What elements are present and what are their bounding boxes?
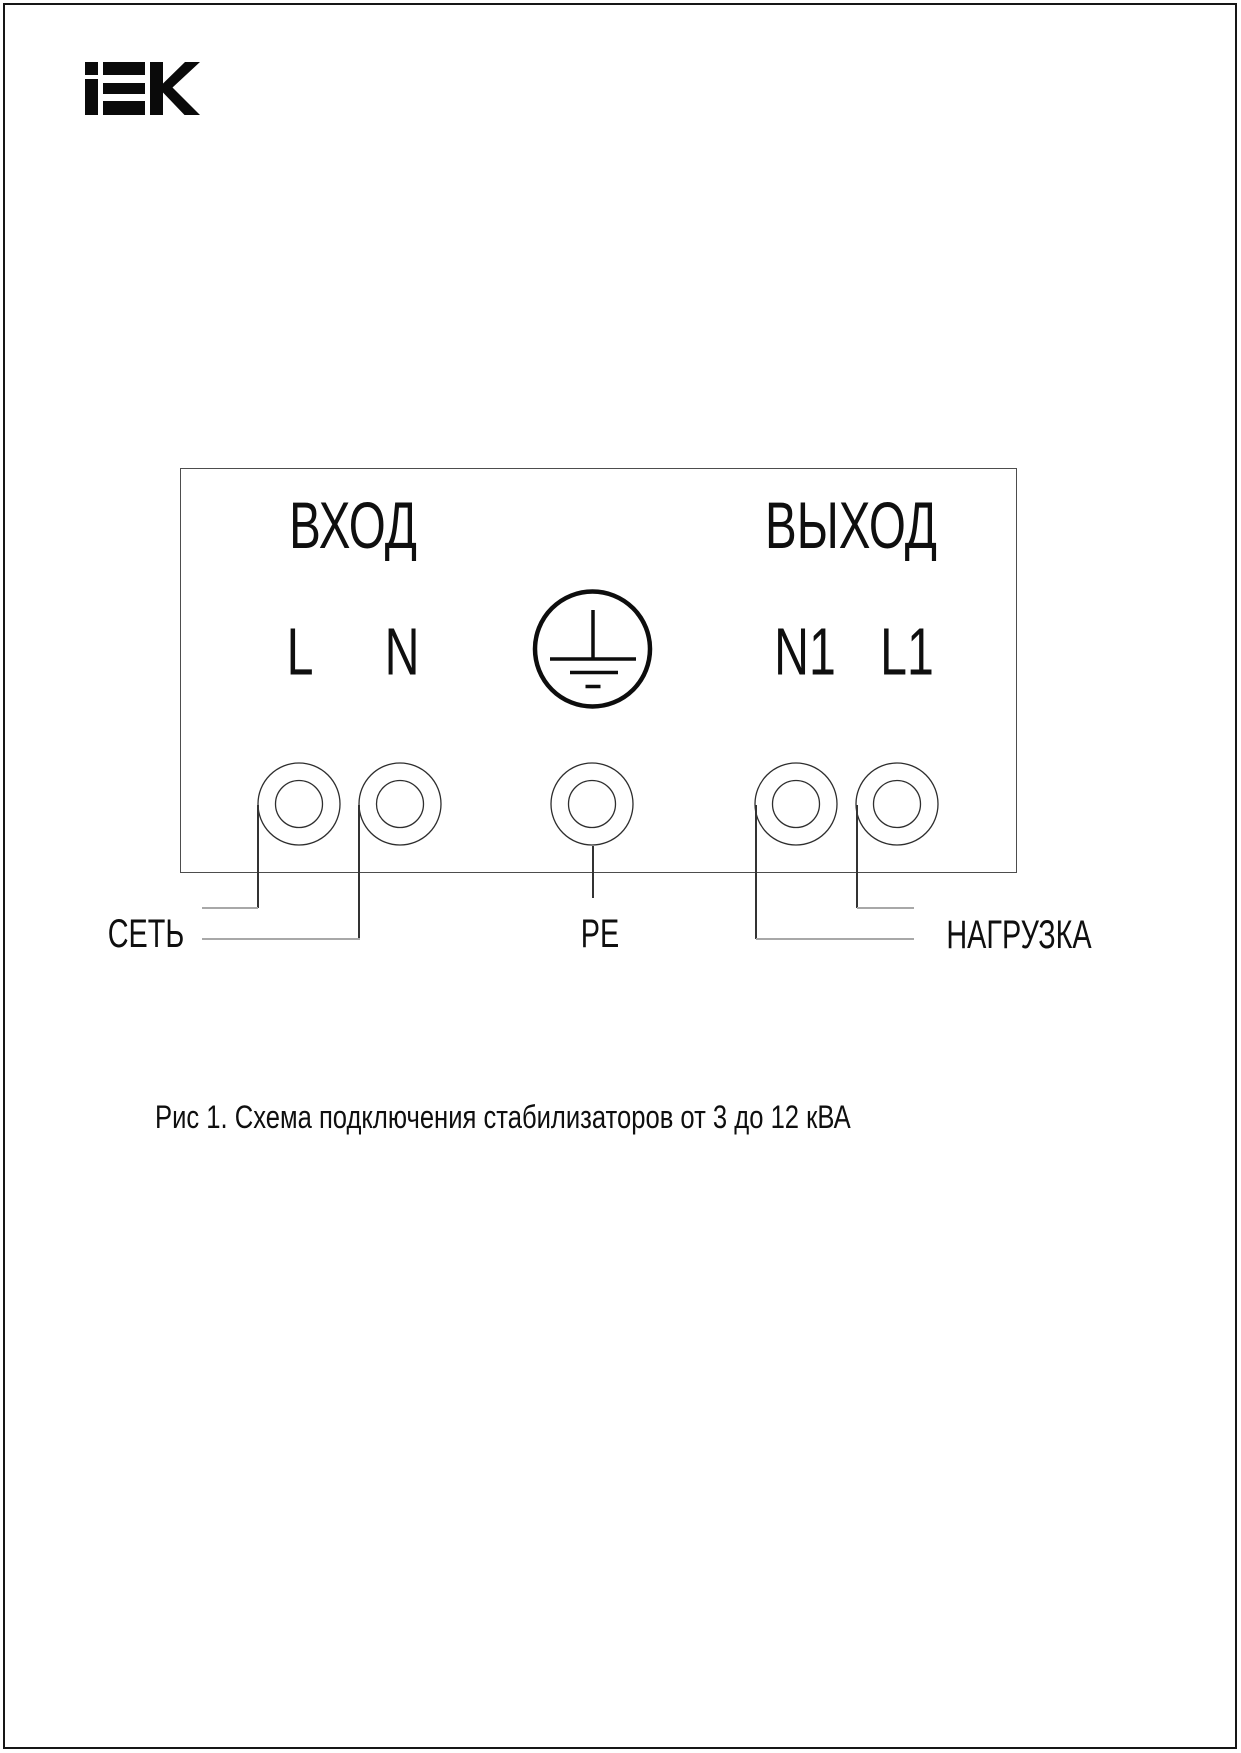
stub-mains-to-n	[202, 938, 360, 940]
wire-pe	[592, 846, 594, 898]
wire-n1	[755, 805, 757, 939]
wire-l1	[856, 805, 858, 908]
stub-mains-to-l	[202, 907, 258, 909]
page-border	[3, 3, 1237, 1749]
iek-logo	[85, 62, 200, 115]
terminal-pe	[551, 763, 633, 845]
terminal-label-n1: N1	[774, 619, 836, 686]
earth-label: PE	[581, 914, 619, 954]
terminal-l	[258, 763, 340, 845]
iek-logo-graphic	[85, 62, 200, 115]
stub-load-to-n1	[756, 938, 914, 940]
protective-earth-icon	[535, 592, 650, 707]
terminal-label-l1: L1	[880, 619, 934, 686]
terminal-n1	[755, 763, 837, 845]
terminal-label-l: L	[287, 619, 314, 686]
manual-page: ВХОД ВЫХОД L N N1 L1 СЕТЬ PE НАГРУЗКА Ри…	[0, 0, 1241, 1753]
output-section-label: ВЫХОД	[765, 492, 937, 558]
terminal-l1	[856, 763, 938, 845]
wire-n	[358, 805, 360, 939]
terminal-label-n: N	[385, 619, 420, 686]
wire-l	[257, 805, 259, 908]
load-label: НАГРУЗКА	[946, 915, 1091, 955]
terminal-n	[359, 763, 441, 845]
input-section-label: ВХОД	[289, 492, 417, 558]
stub-load-to-l1	[857, 907, 914, 909]
figure-caption: Рис 1. Схема подключения стабилизаторов …	[155, 1101, 851, 1133]
mains-label: СЕТЬ	[108, 914, 185, 954]
